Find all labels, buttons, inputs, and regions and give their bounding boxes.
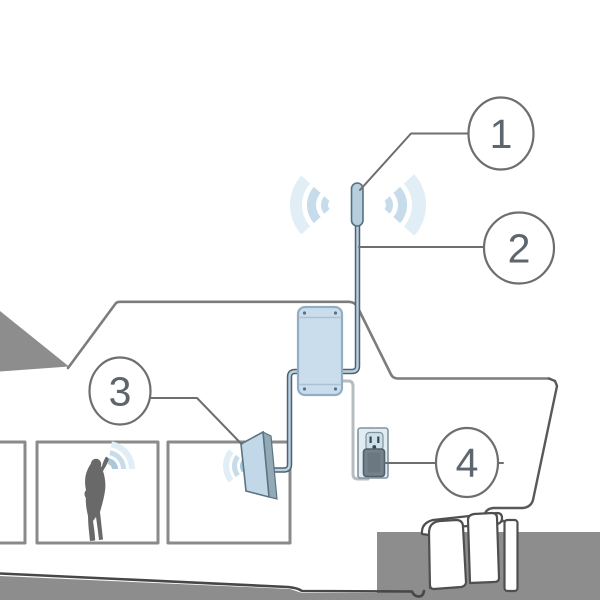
callout-2-label: 2: [508, 226, 531, 272]
callout-lines: [150, 134, 503, 464]
motor-mount: [468, 513, 499, 583]
callout-2: 2: [484, 213, 554, 284]
signal-waves-outdoor-right-icon: [385, 174, 427, 236]
transom-column: [505, 520, 518, 591]
callout-4: 4: [436, 428, 498, 497]
callout-1-label: 1: [490, 111, 513, 157]
bow-wedge: [0, 311, 69, 372]
window-1: [0, 442, 25, 543]
person-bag: [85, 490, 91, 499]
callout-line-3: [150, 398, 242, 444]
diagram-canvas: 1 2 3 4: [0, 0, 600, 600]
callout-4-label: 4: [456, 440, 479, 486]
callout-1: 1: [469, 98, 534, 170]
callouts: 1 2 3 4: [90, 98, 555, 498]
amplifier-body: [298, 307, 342, 395]
boat-booster-diagram: 1 2 3 4: [0, 0, 600, 600]
signal-booster-amplifier: [298, 307, 342, 395]
callout-3-label: 3: [109, 369, 132, 415]
power-outlet: [358, 428, 388, 478]
power-plug-face: [368, 453, 381, 473]
signal-waves-outdoor-left-icon: [290, 176, 329, 235]
callout-3: 3: [90, 358, 151, 425]
motor-cowl: [429, 520, 466, 589]
